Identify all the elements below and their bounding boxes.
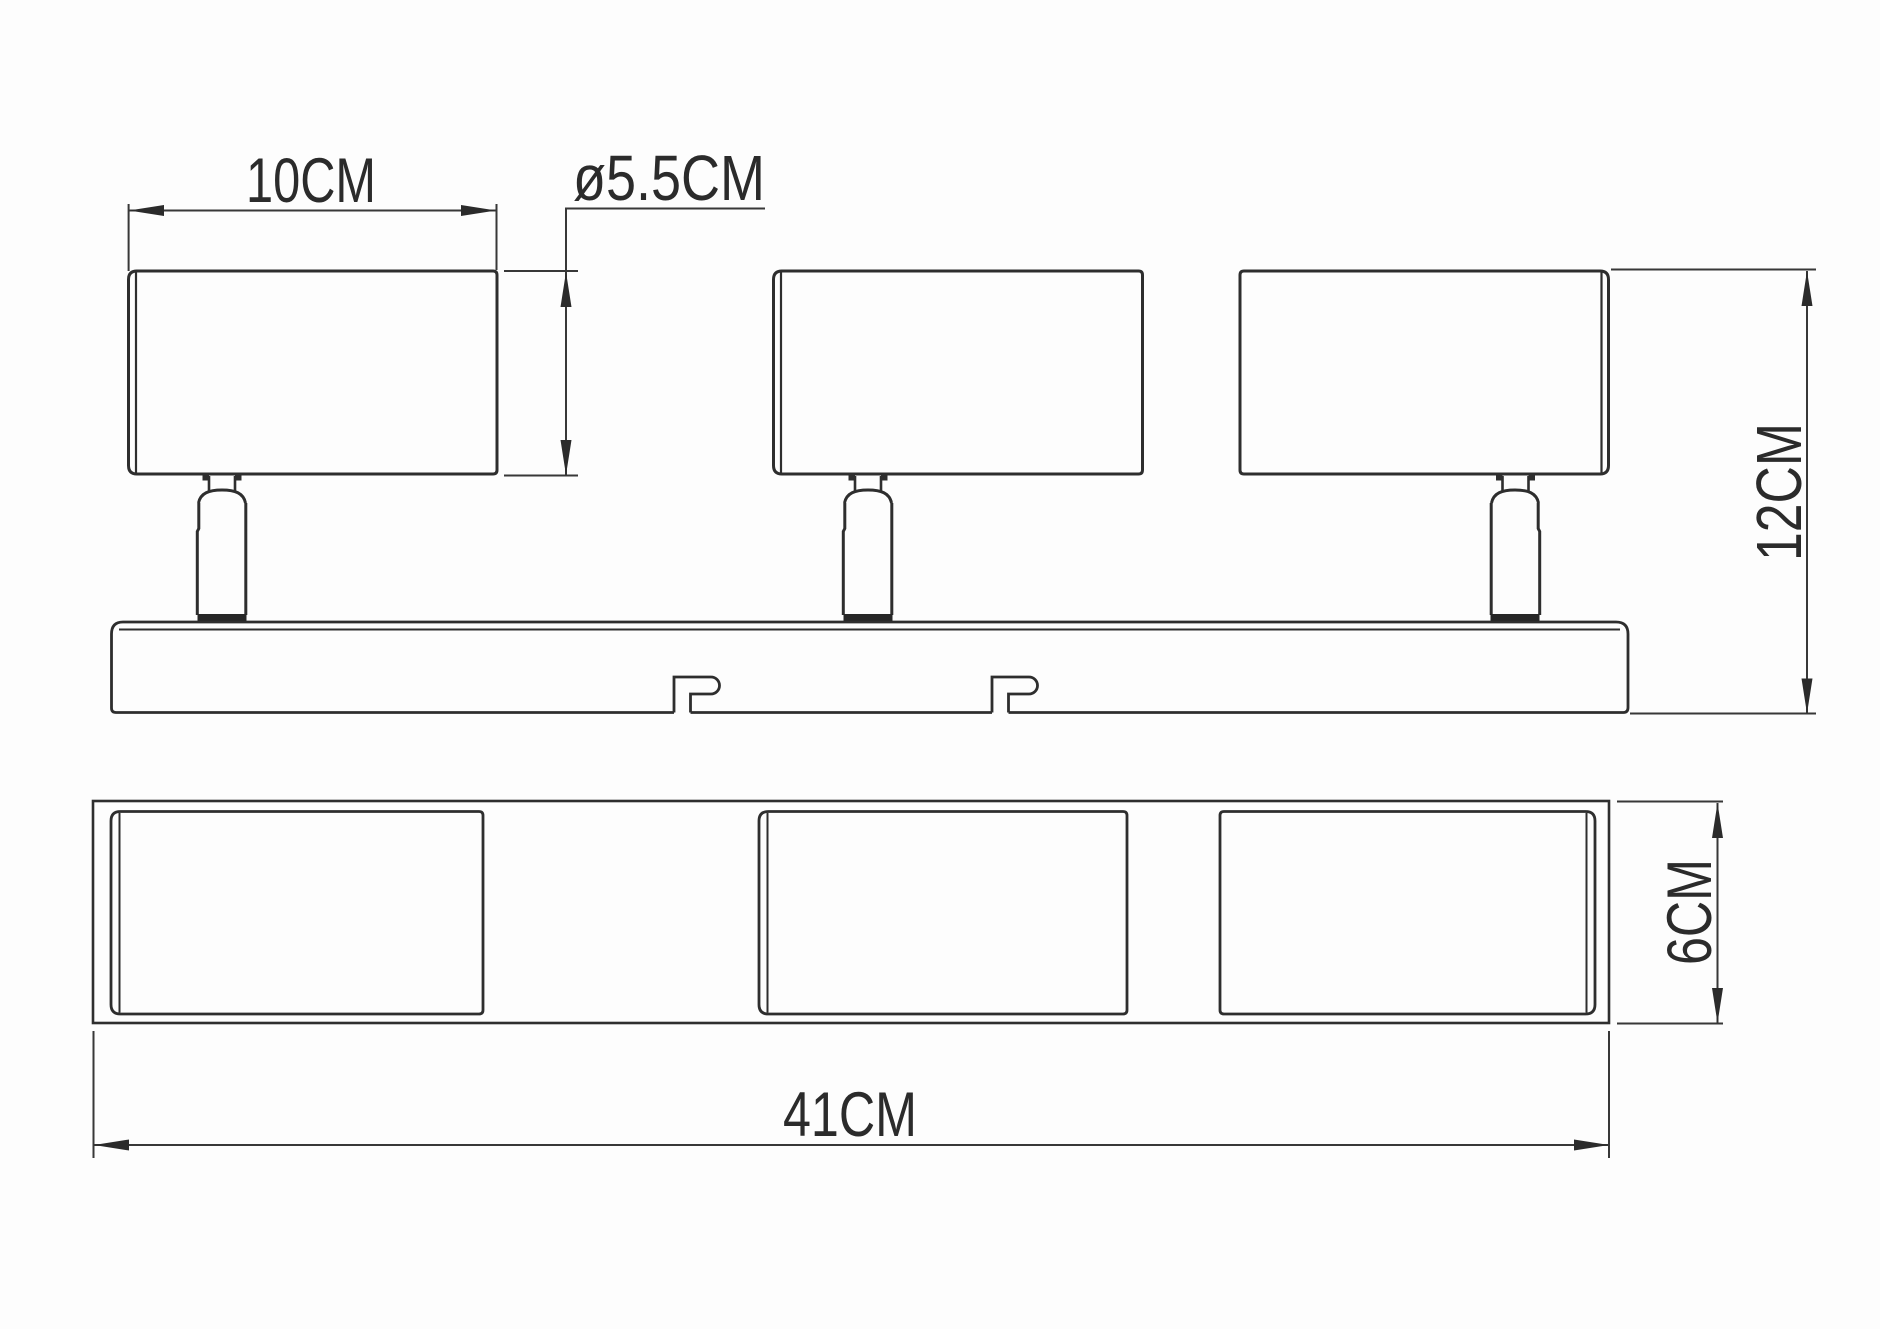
svg-text:6CM: 6CM [1655,859,1725,965]
svg-text:41CM: 41CM [783,1080,917,1150]
svg-text:12CM: 12CM [1743,423,1815,561]
svg-text:10CM: 10CM [246,146,376,216]
svg-text:ø5.5CM: ø5.5CM [573,142,765,214]
